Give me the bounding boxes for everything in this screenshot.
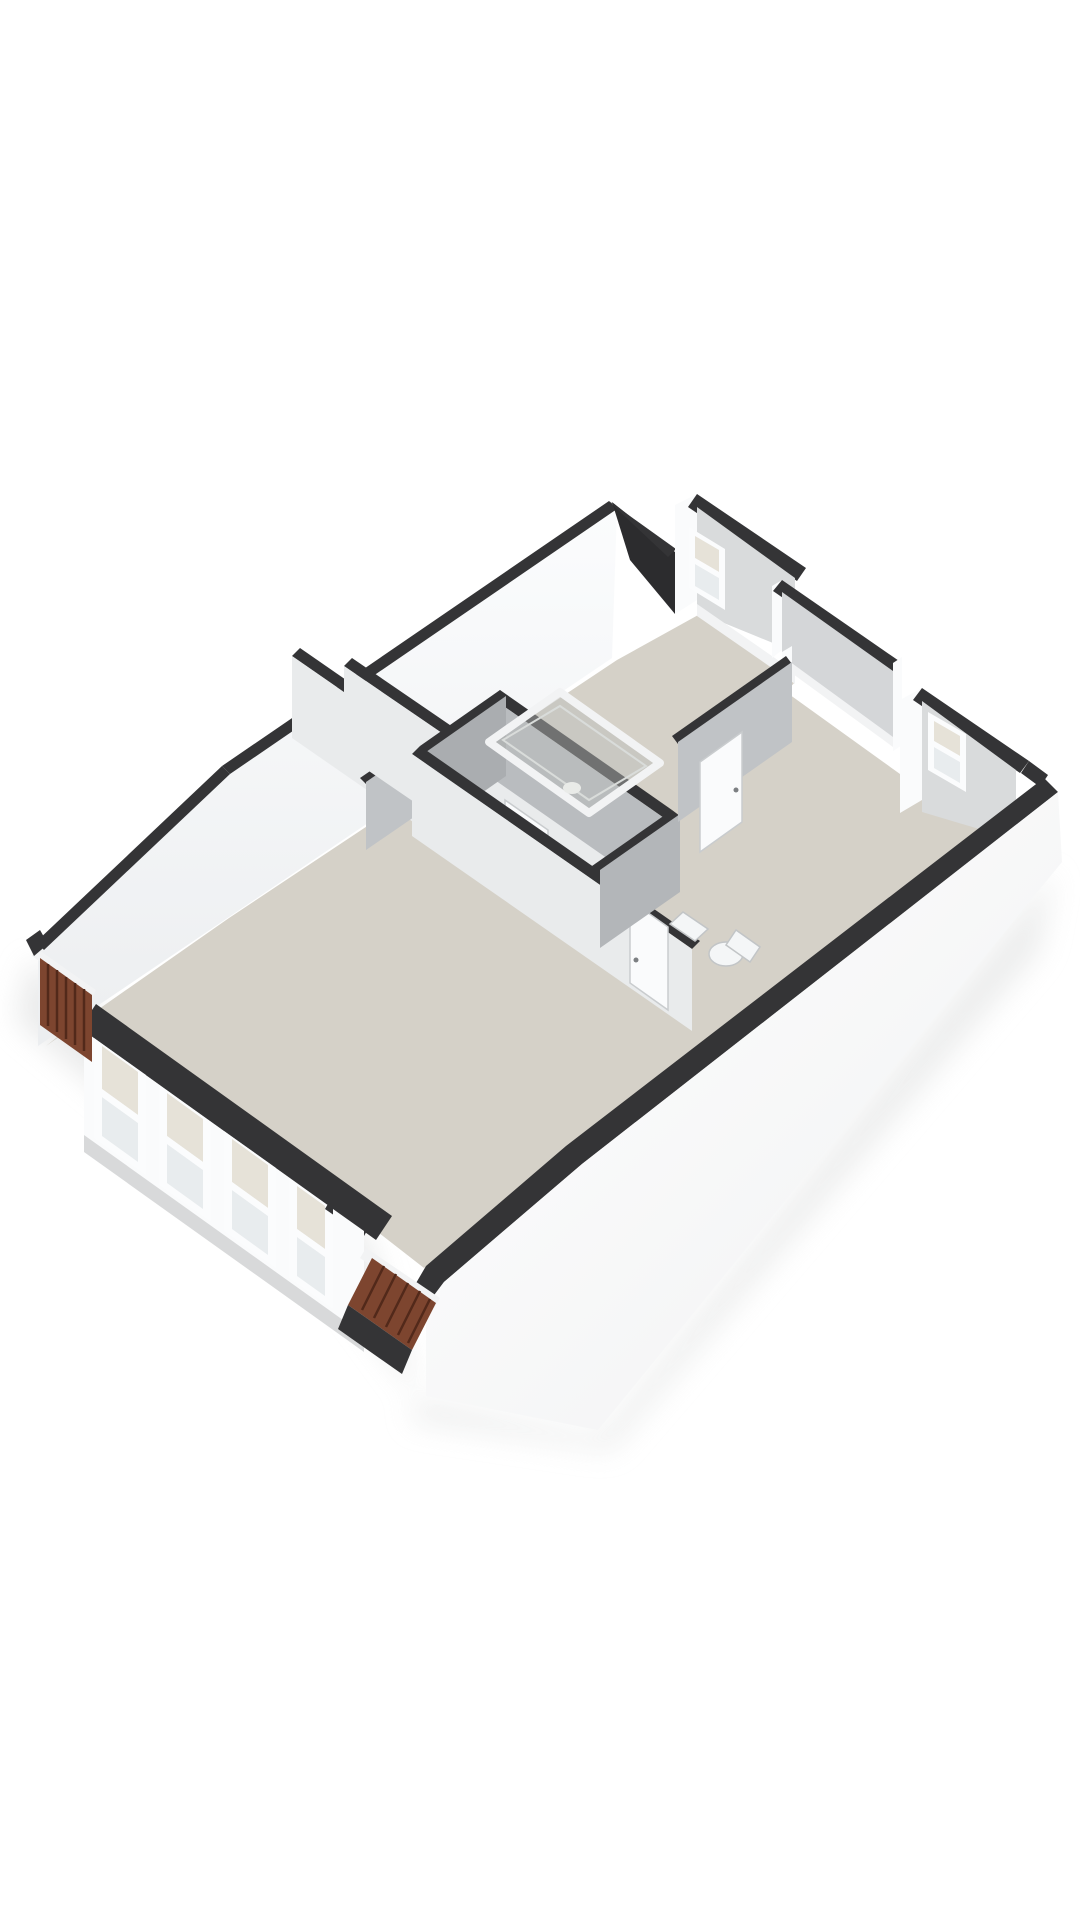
bath-door-handle — [634, 958, 639, 963]
dormer2-left-pier — [900, 688, 922, 813]
floorplan-3d-render — [0, 0, 1080, 1920]
gable-apex-shadow — [612, 502, 675, 614]
bedroom-door-handle — [734, 788, 739, 793]
floorplan-canvas — [0, 0, 1080, 1920]
shower-drain — [563, 782, 581, 794]
